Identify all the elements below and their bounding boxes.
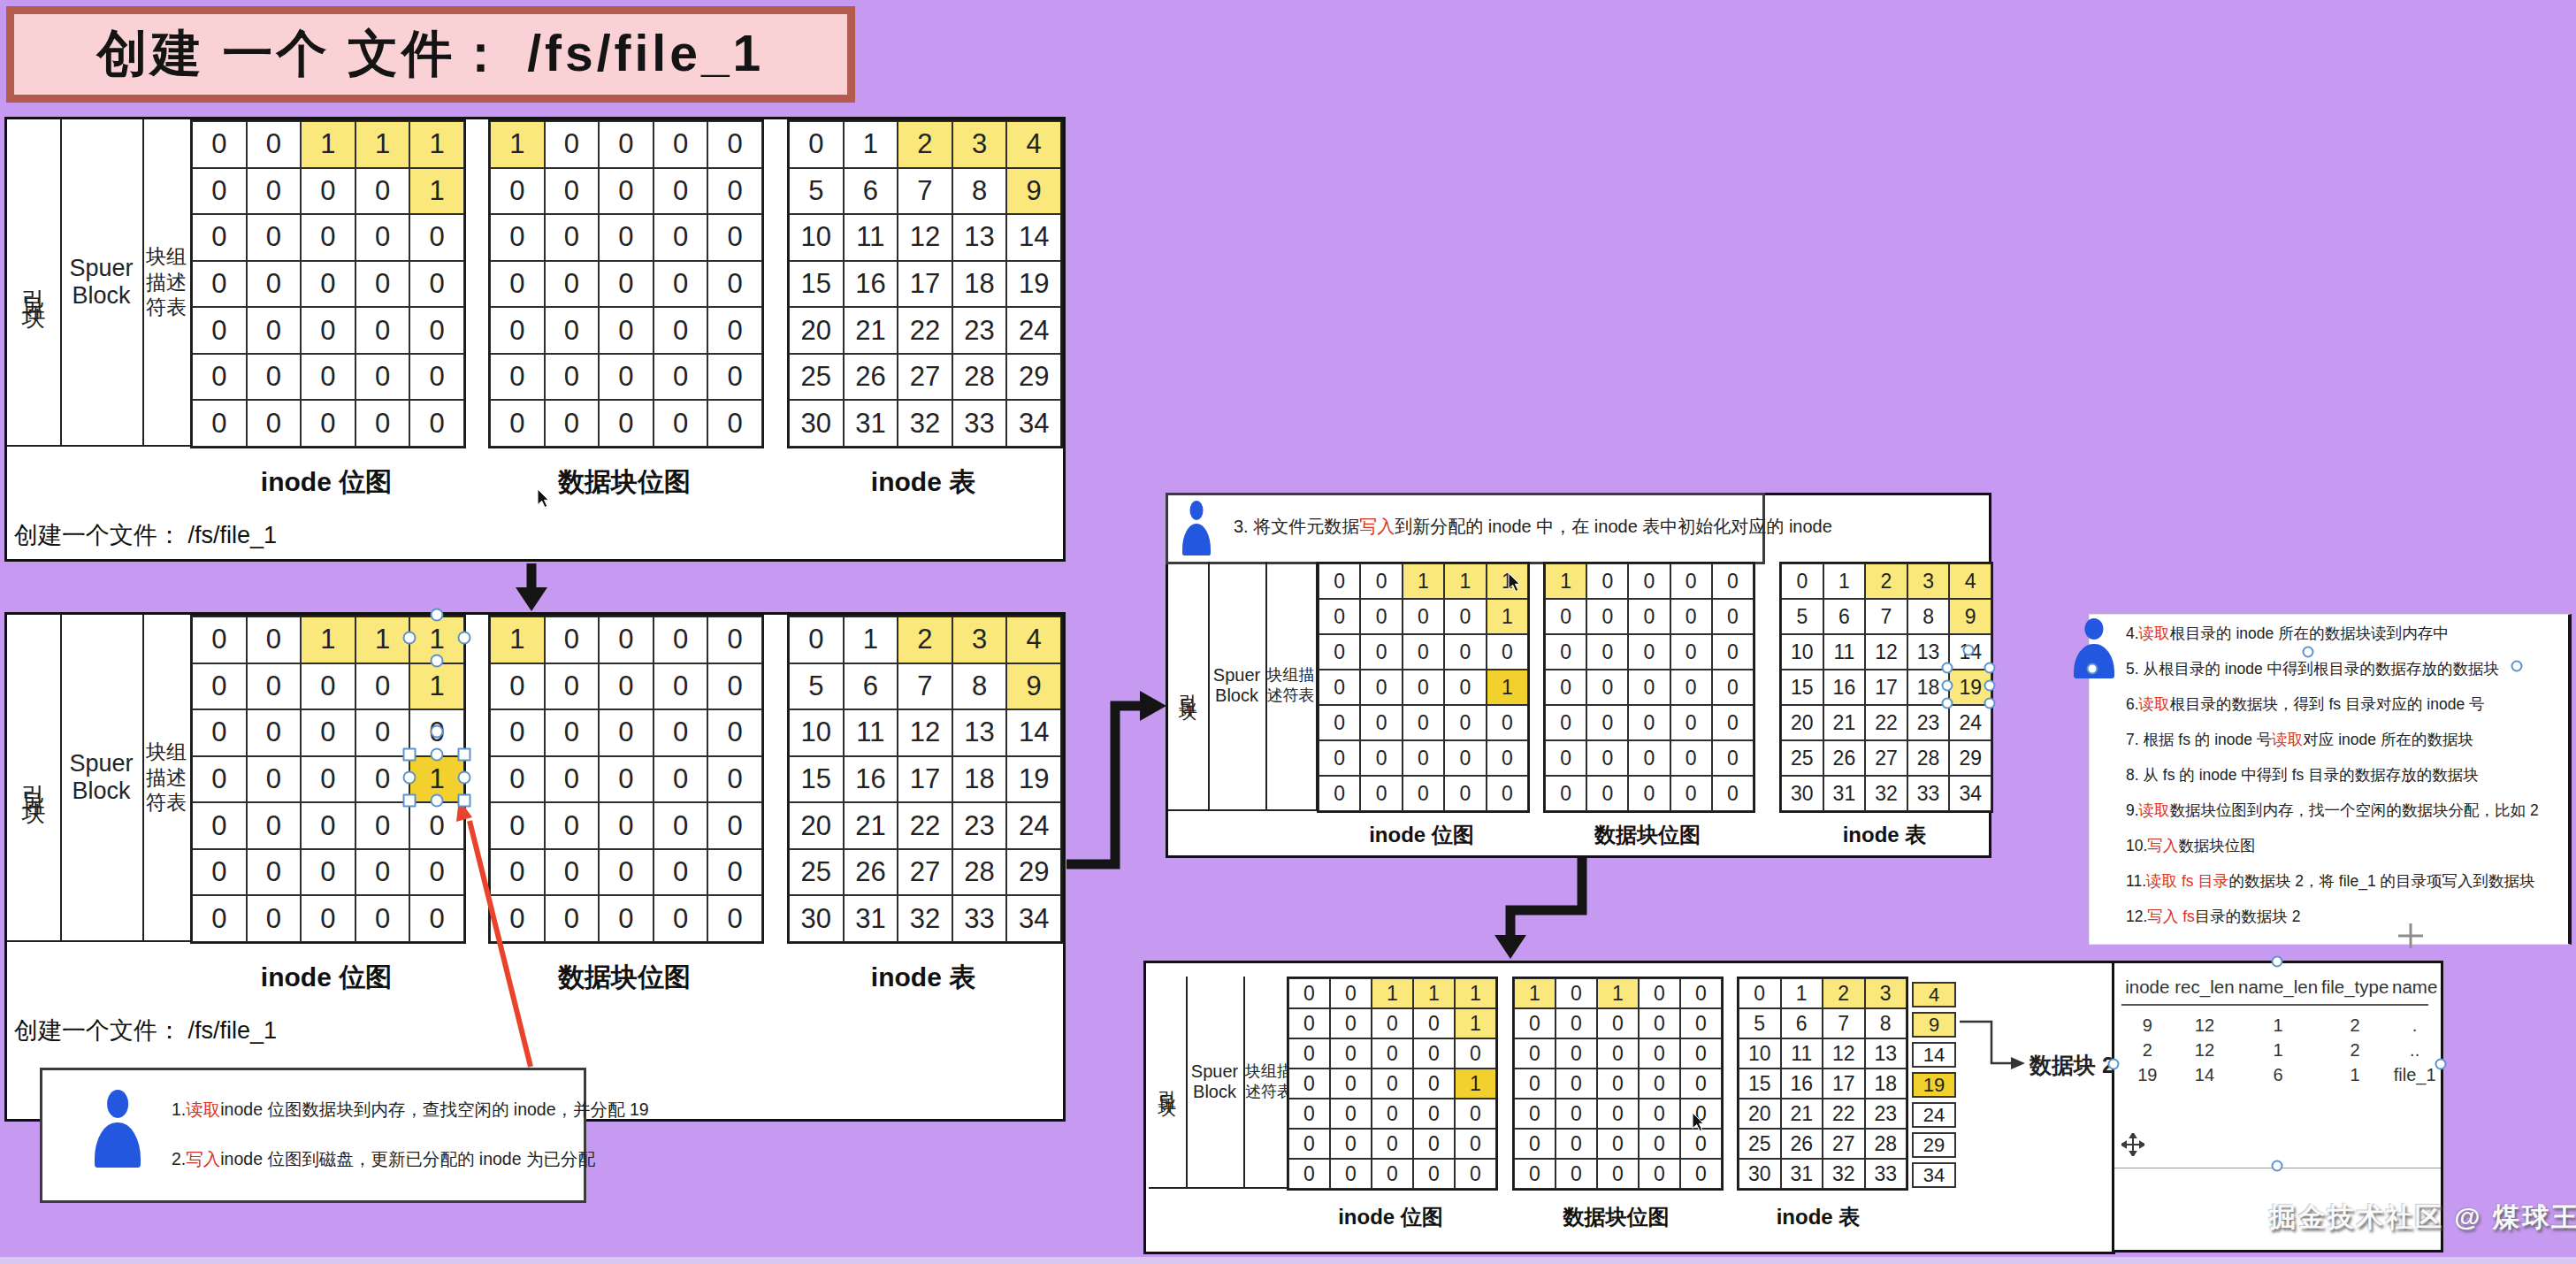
- grid-cell: 0: [1319, 705, 1360, 740]
- grid-cell: 0: [490, 354, 545, 401]
- step-item: 10. 写入数据块位图: [2126, 828, 2568, 863]
- grid-cell: 0: [1455, 1038, 1496, 1069]
- selection-handle[interactable]: [2511, 661, 2523, 672]
- grid-cell: 0: [1403, 776, 1444, 811]
- grid-cell: 0: [1628, 776, 1670, 811]
- grid-cell: 0: [1288, 1159, 1330, 1189]
- grid-cell: 6: [844, 663, 898, 710]
- text-segment: 写入: [1359, 515, 1395, 539]
- table-cell: 12: [2174, 1015, 2236, 1036]
- grid-cell: 0: [301, 663, 355, 710]
- selection-handle[interactable]: [1942, 663, 1953, 674]
- grid-cell: 0: [247, 802, 302, 849]
- grid-cell: 1: [1514, 978, 1556, 1008]
- grid-cell: 0: [1670, 563, 1712, 599]
- grid-cell: 0: [1330, 1159, 1372, 1189]
- grid-cell: 4: [1006, 617, 1061, 663]
- selection-handle[interactable]: [403, 748, 417, 762]
- selection-handle[interactable]: [403, 632, 417, 645]
- grid-cell: 22: [898, 802, 952, 849]
- grid-cell: 29: [1006, 354, 1061, 401]
- grid-cell: 0: [490, 895, 545, 942]
- grid-cell: 0: [654, 895, 708, 942]
- detached-cell: 4: [1912, 982, 1956, 1007]
- grid-cell: 0: [355, 709, 410, 756]
- text-segment: 读取: [2139, 800, 2170, 821]
- grid-cell: 0: [1639, 1069, 1680, 1099]
- grid-cell: 0: [1288, 1038, 1330, 1069]
- grid-cell: 0: [1413, 1008, 1455, 1038]
- grid-cell: 1: [1487, 563, 1528, 599]
- selection-handle[interactable]: [2435, 1059, 2447, 1070]
- grid-cell: 0: [1556, 1008, 1597, 1038]
- table-cell: 1: [2236, 1015, 2320, 1036]
- grid-cell: 8: [952, 168, 1007, 215]
- grid-cell: 0: [1413, 1159, 1455, 1189]
- grid-cell: 0: [192, 709, 247, 756]
- grid-cell: 13: [952, 214, 1007, 261]
- grid-cell: 16: [1823, 670, 1866, 705]
- grid-cell: 0: [1514, 1038, 1556, 1069]
- grid-cell: 0: [654, 168, 708, 215]
- grid-cell: 0: [1680, 1038, 1722, 1069]
- selection-handle[interactable]: [458, 771, 471, 785]
- rotation-handle[interactable]: [1963, 645, 1975, 656]
- grid-cell: 0: [1455, 1159, 1496, 1189]
- arrow-step2-to-step3: [1066, 691, 1166, 864]
- grid-cell: 0: [1514, 1008, 1556, 1038]
- grid-cell: 0: [355, 354, 410, 401]
- p4-inode-table-detached-column: 491419242934: [1912, 982, 1956, 1192]
- grid-cell: 9: [1006, 168, 1061, 215]
- inode-table-label: inode 表: [1779, 821, 1990, 849]
- selection-handle[interactable]: [458, 632, 471, 645]
- grid-cell: 21: [844, 802, 898, 849]
- panel-caption: 创建一个文件： /fs/file_1: [14, 1015, 277, 1046]
- grid-cell: 23: [952, 802, 1007, 849]
- grid-cell: 17: [898, 261, 952, 308]
- grid-cell: 17: [1823, 1069, 1865, 1099]
- grid-cell: 0: [1545, 776, 1586, 811]
- grid-cell: 4: [1949, 563, 1991, 599]
- grid-cell: 23: [952, 307, 1007, 354]
- selection-handle[interactable]: [403, 794, 417, 808]
- grid-cell: 0: [707, 895, 762, 942]
- grid-cell: 31: [1823, 776, 1866, 811]
- grid-cell: 0: [707, 168, 762, 215]
- text-segment: 读取: [186, 1098, 220, 1122]
- selection-handle[interactable]: [403, 771, 417, 785]
- grid-cell: 1: [1444, 563, 1486, 599]
- grid-cell: 0: [1330, 1099, 1372, 1129]
- grid-cell: 0: [1288, 1069, 1330, 1099]
- grid-cell: 0: [1680, 1099, 1722, 1129]
- grid-cell: 0: [1360, 776, 1402, 811]
- grid-cell: 0: [545, 400, 600, 447]
- super-block-label: Spuer Block: [1186, 977, 1245, 1189]
- grid-cell: 14: [1006, 214, 1061, 261]
- grid-cell: 0: [545, 849, 600, 896]
- grid-cell: 28: [952, 849, 1007, 896]
- grid-cell: 0: [490, 261, 545, 308]
- grid-cell: 0: [1712, 670, 1754, 705]
- grid-cell: 6: [844, 168, 898, 215]
- grid-cell: 0: [789, 121, 844, 168]
- grid-cell: 33: [952, 895, 1007, 942]
- grid-cell: 26: [844, 849, 898, 896]
- grid-cell: 0: [1444, 670, 1486, 705]
- grid-cell: 0: [192, 849, 247, 896]
- step3-callout: 3. 将文件元数据写入到新分配的 inode 中，在 inode 表中初始化对应…: [1166, 493, 1765, 564]
- grid-cell: 0: [1597, 1159, 1639, 1189]
- text-segment: 2.: [172, 1149, 186, 1169]
- grid-cell: 0: [247, 849, 302, 896]
- grid-cell: 1: [490, 617, 545, 663]
- grid-cell: 10: [789, 709, 844, 756]
- grid-cell: 3: [1865, 978, 1907, 1008]
- super-block-label: Spuer Block: [1208, 562, 1267, 811]
- grid-cell: 0: [707, 354, 762, 401]
- grid-cell: 17: [1865, 670, 1907, 705]
- grid-cell: 0: [1639, 1129, 1680, 1159]
- column-header: name_len: [2236, 977, 2320, 998]
- grid-cell: 33: [1865, 1159, 1907, 1189]
- grid-cell: 0: [1514, 1099, 1556, 1129]
- p1-data-bitmap: 10000000000000000000000000000000000: [488, 119, 764, 448]
- inode-bitmap-label: inode 位图: [190, 464, 462, 501]
- text-segment: 8. 从 fs 的 inode 中得到 fs 目录的数据存放的数据块: [2126, 764, 2479, 785]
- selection-handle[interactable]: [431, 748, 444, 762]
- grid-cell: 0: [545, 756, 600, 803]
- selection-handle[interactable]: [1942, 698, 1953, 709]
- grid-cell: 10: [1781, 634, 1823, 670]
- text-segment: 12.: [2126, 908, 2147, 926]
- grid-cell: 0: [1680, 1069, 1722, 1099]
- grid-cell: 1: [1487, 599, 1528, 634]
- inode-bitmap-label: inode 位图: [1287, 1203, 1494, 1231]
- selection-handle[interactable]: [1984, 663, 1996, 674]
- grid-cell: 1: [301, 617, 355, 663]
- grid-cell: 0: [545, 214, 600, 261]
- grid-cell: 0: [490, 307, 545, 354]
- grid-cell: 0: [247, 168, 302, 215]
- grid-cell: 0: [1628, 740, 1670, 776]
- grid-cell: 0: [1712, 705, 1754, 740]
- selection-handle[interactable]: [458, 748, 471, 762]
- data-bitmap-label: 数据块位图: [488, 960, 761, 996]
- p1-inode-table: 0123456789101112131415161718192021222324…: [787, 119, 1063, 448]
- grid-cell: 0: [707, 261, 762, 308]
- text-segment: 7. 根据 fs 的 inode 号: [2126, 729, 2272, 750]
- grid-cell: 0: [301, 307, 355, 354]
- grid-cell: 0: [654, 400, 708, 447]
- rotation-handle[interactable]: [431, 725, 444, 739]
- grid-cell: 28: [952, 354, 1007, 401]
- detached-cell: 9: [1912, 1012, 1956, 1038]
- text-segment: 10.: [2126, 837, 2147, 855]
- grid-cell: 0: [1556, 978, 1597, 1008]
- grid-cell: 22: [1865, 705, 1907, 740]
- text-segment: 11.: [2126, 872, 2146, 891]
- grid-cell: 5: [789, 168, 844, 215]
- boot-block-label: 引导块: [1149, 977, 1188, 1189]
- grid-cell: 0: [1545, 705, 1586, 740]
- grid-cell: 0: [490, 400, 545, 447]
- grid-cell: 0: [707, 307, 762, 354]
- grid-cell: 5: [1781, 599, 1823, 634]
- selection-handle[interactable]: [2303, 647, 2314, 658]
- grid-cell: 0: [355, 400, 410, 447]
- grid-cell: 18: [952, 756, 1007, 803]
- p2-inode-bitmap: 00111000010000000001000000000000000: [190, 615, 466, 944]
- grid-cell: 0: [1556, 1038, 1597, 1069]
- grid-cell: 0: [1360, 705, 1402, 740]
- text-segment: 目录的数据块 2: [2195, 906, 2301, 927]
- grid-cell: 0: [1444, 705, 1486, 740]
- grid-cell: 10: [789, 214, 844, 261]
- grid-cell: 34: [1006, 400, 1061, 447]
- grid-cell: 0: [599, 617, 654, 663]
- selection-handle[interactable]: [458, 794, 471, 808]
- grid-cell: 0: [1586, 599, 1628, 634]
- grid-cell: 24: [1006, 307, 1061, 354]
- grid-cell: 24: [1006, 802, 1061, 849]
- grid-cell: 15: [789, 261, 844, 308]
- grid-cell: 34: [1006, 895, 1061, 942]
- grid-cell: 0: [1330, 1069, 1372, 1099]
- selection-handle[interactable]: [431, 794, 444, 808]
- grid-cell: 0: [545, 121, 600, 168]
- grid-cell: 0: [247, 121, 302, 168]
- grid-cell: 25: [789, 354, 844, 401]
- text-segment: 数据块位图到内存，找一个空闲的数据块分配，比如 2: [2170, 800, 2539, 821]
- directory-entries-table: inoderec_lenname_lenfile_typename91212.2…: [2121, 972, 2440, 1087]
- grid-cell: 27: [1865, 740, 1907, 776]
- grid-cell: 27: [898, 849, 952, 896]
- p3-inode-bitmap: 00111000010000000001000000000000000: [1317, 562, 1530, 813]
- grid-cell: 0: [1487, 634, 1528, 670]
- grid-cell: 0: [599, 849, 654, 896]
- grid-cell: 20: [1781, 705, 1823, 740]
- grid-cell: 0: [355, 802, 410, 849]
- grid-cell: 0: [1372, 1069, 1413, 1099]
- title-banner: 创建 一个 文件： /fs/file_1: [6, 6, 855, 103]
- user-icon: [94, 1090, 141, 1168]
- grid-cell: 0: [545, 802, 600, 849]
- grid-cell: 0: [247, 756, 302, 803]
- grid-cell: 25: [789, 849, 844, 896]
- grid-cell: 33: [1907, 776, 1950, 811]
- grid-cell: 0: [301, 709, 355, 756]
- table-cell: 2: [2320, 1015, 2389, 1036]
- grid-cell: 0: [301, 802, 355, 849]
- grid-cell: 20: [789, 802, 844, 849]
- grid-cell: 0: [1360, 740, 1402, 776]
- text-segment: 写入: [186, 1147, 220, 1171]
- grid-cell: 0: [247, 214, 302, 261]
- step-item: 12. 写入 fs 目录的数据块 2: [2126, 899, 2568, 934]
- grid-cell: 0: [192, 261, 247, 308]
- grid-cell: 12: [898, 709, 952, 756]
- selection-handle[interactable]: [2108, 1059, 2120, 1070]
- text-segment: inode 位图数据块到内存，查找空闲的 inode，并分配 19: [220, 1098, 648, 1122]
- grid-cell: 0: [409, 802, 464, 849]
- grid-cell: 0: [707, 849, 762, 896]
- grid-cell: 0: [707, 121, 762, 168]
- grid-cell: 0: [1670, 634, 1712, 670]
- grid-cell: 0: [192, 354, 247, 401]
- grid-cell: 1: [409, 168, 464, 215]
- data-block-2-label: 数据块 2: [2029, 1051, 2114, 1080]
- diagram-step2-panel: 引导块 Spuer Block 块组描述符表 00111000010000000…: [4, 612, 1066, 1122]
- selection-handle[interactable]: [1984, 680, 1996, 692]
- step-item: 6. 读取根目录的数据块，得到 fs 目录对应的 inode 号: [2126, 686, 2568, 722]
- grid-cell: 30: [789, 895, 844, 942]
- grid-cell: 7: [1865, 599, 1907, 634]
- grid-cell: 0: [1712, 563, 1754, 599]
- grid-cell: 0: [192, 400, 247, 447]
- table-cell: 6: [2236, 1065, 2320, 1085]
- grid-cell: 0: [490, 214, 545, 261]
- grid-cell: 22: [1823, 1099, 1865, 1129]
- grid-cell: 1: [1487, 670, 1528, 705]
- grid-cell: 0: [1781, 563, 1823, 599]
- grid-cell: 1: [355, 617, 410, 663]
- bgdt-label: 块组描述符表: [142, 119, 192, 447]
- grid-cell: 0: [1597, 1099, 1639, 1129]
- grid-cell: 0: [192, 663, 247, 710]
- grid-cell: 0: [1712, 599, 1754, 634]
- table-cell: .: [2389, 1015, 2440, 1036]
- grid-cell: 0: [1739, 978, 1781, 1008]
- p4-inode-bitmap: 00111000010000000001000000000000000: [1287, 977, 1498, 1191]
- grid-cell: 0: [192, 617, 247, 663]
- steps-list: 4. 读取根目录的 inode 所在的数据块读到内存中5. 从根目录的 inod…: [2126, 616, 2568, 934]
- selection-handle[interactable]: [2272, 1161, 2283, 1172]
- grid-cell: 0: [1670, 705, 1712, 740]
- grid-cell: 0: [1444, 740, 1486, 776]
- grid-cell: 0: [301, 214, 355, 261]
- grid-cell: 0: [1586, 705, 1628, 740]
- grid-cell: 0: [1444, 599, 1486, 634]
- grid-cell: 1: [1403, 563, 1444, 599]
- grid-cell: 13: [1865, 1038, 1907, 1069]
- arrow-step3-to-step4: [1494, 858, 1582, 959]
- grid-cell: 29: [1006, 849, 1061, 896]
- grid-cell: 0: [654, 849, 708, 896]
- grid-cell: 25: [1739, 1129, 1781, 1159]
- grid-cell: 0: [1639, 1008, 1680, 1038]
- text-segment: 6.: [2126, 695, 2139, 714]
- grid-cell: 0: [1403, 740, 1444, 776]
- callout-line-1: 1. 读取 inode 位图数据块到内存，查找空闲的 inode，并分配 19: [172, 1090, 649, 1129]
- grid-cell: 0: [545, 617, 600, 663]
- grid-cell: 24: [1949, 705, 1991, 740]
- selection-handle[interactable]: [1984, 698, 1996, 709]
- table-cell: 9: [2121, 1015, 2174, 1036]
- table-cell: 2: [2320, 1040, 2389, 1061]
- grid-cell: 16: [844, 261, 898, 308]
- grid-cell: 1: [1455, 1008, 1496, 1038]
- grid-cell: 0: [654, 354, 708, 401]
- grid-cell: 0: [1680, 1008, 1722, 1038]
- grid-cell: 9: [1949, 599, 1991, 634]
- grid-cell: 0: [599, 802, 654, 849]
- grid-cell: 0: [1319, 740, 1360, 776]
- grid-cell: 1: [355, 121, 410, 168]
- grid-cell: 0: [355, 168, 410, 215]
- selection-handle[interactable]: [431, 609, 444, 622]
- grid-cell: 32: [1865, 776, 1907, 811]
- p3-inode-table: 0123456789101112131415161718192021222324…: [1779, 562, 1993, 813]
- grid-cell: 0: [1586, 670, 1628, 705]
- grid-cell: 0: [1360, 563, 1402, 599]
- selection-handle[interactable]: [2087, 663, 2098, 675]
- grid-cell: 0: [247, 663, 302, 710]
- grid-cell: 0: [247, 307, 302, 354]
- text-segment: 数据块位图: [2178, 835, 2256, 856]
- grid-cell: 11: [844, 709, 898, 756]
- grid-cell: 31: [844, 400, 898, 447]
- selection-handle[interactable]: [1942, 680, 1953, 692]
- grid-cell: 0: [1670, 599, 1712, 634]
- grid-cell: 0: [599, 895, 654, 942]
- selection-handle[interactable]: [431, 655, 444, 668]
- grid-cell: 30: [1739, 1159, 1781, 1189]
- text-segment: 5. 从根目录的 inode 中得到根目录的数据存放的数据块: [2126, 658, 2499, 679]
- grid-cell: 3: [952, 121, 1007, 168]
- grid-cell: 1: [1823, 563, 1866, 599]
- grid-cell: 0: [654, 307, 708, 354]
- inode-table-label: inode 表: [787, 960, 1059, 996]
- grid-cell: 12: [1823, 1038, 1865, 1069]
- selection-handle[interactable]: [2272, 956, 2283, 968]
- grid-cell: 0: [355, 849, 410, 896]
- grid-cell: 0: [545, 895, 600, 942]
- grid-cell: 0: [1455, 1129, 1496, 1159]
- grid-cell: 0: [1487, 705, 1528, 740]
- grid-cell: 0: [192, 895, 247, 942]
- grid-cell: 0: [707, 802, 762, 849]
- grid-cell: 0: [545, 168, 600, 215]
- grid-cell: 0: [1413, 1099, 1455, 1129]
- grid-cell: 14: [1006, 709, 1061, 756]
- grid-cell: 0: [409, 307, 464, 354]
- grid-cell: 0: [1372, 1129, 1413, 1159]
- grid-cell: 0: [1330, 1008, 1372, 1038]
- grid-cell: 2: [898, 121, 952, 168]
- grid-cell: 0: [1628, 705, 1670, 740]
- inode-table-label: inode 表: [787, 464, 1059, 501]
- grid-cell: 0: [1514, 1159, 1556, 1189]
- move-cursor-icon: [2121, 1133, 2144, 1156]
- text-segment: 根目录的 inode 所在的数据块读到内存中: [2170, 623, 2449, 644]
- grid-cell: 25: [1781, 740, 1823, 776]
- grid-cell: 11: [1823, 634, 1866, 670]
- grid-cell: 0: [1597, 1008, 1639, 1038]
- grid-cell: 34: [1949, 776, 1991, 811]
- boot-block-label: 引导块: [7, 119, 62, 447]
- grid-cell: 0: [192, 214, 247, 261]
- grid-cell: 0: [1586, 563, 1628, 599]
- grid-cell: 31: [844, 895, 898, 942]
- grid-cell: 0: [1319, 776, 1360, 811]
- text-segment: 读取: [2139, 623, 2170, 644]
- grid-cell: 0: [599, 400, 654, 447]
- grid-cell: 18: [1865, 1069, 1907, 1099]
- table-header-row: inoderec_lenname_lenfile_typename: [2121, 972, 2440, 1002]
- grid-cell: 0: [409, 849, 464, 896]
